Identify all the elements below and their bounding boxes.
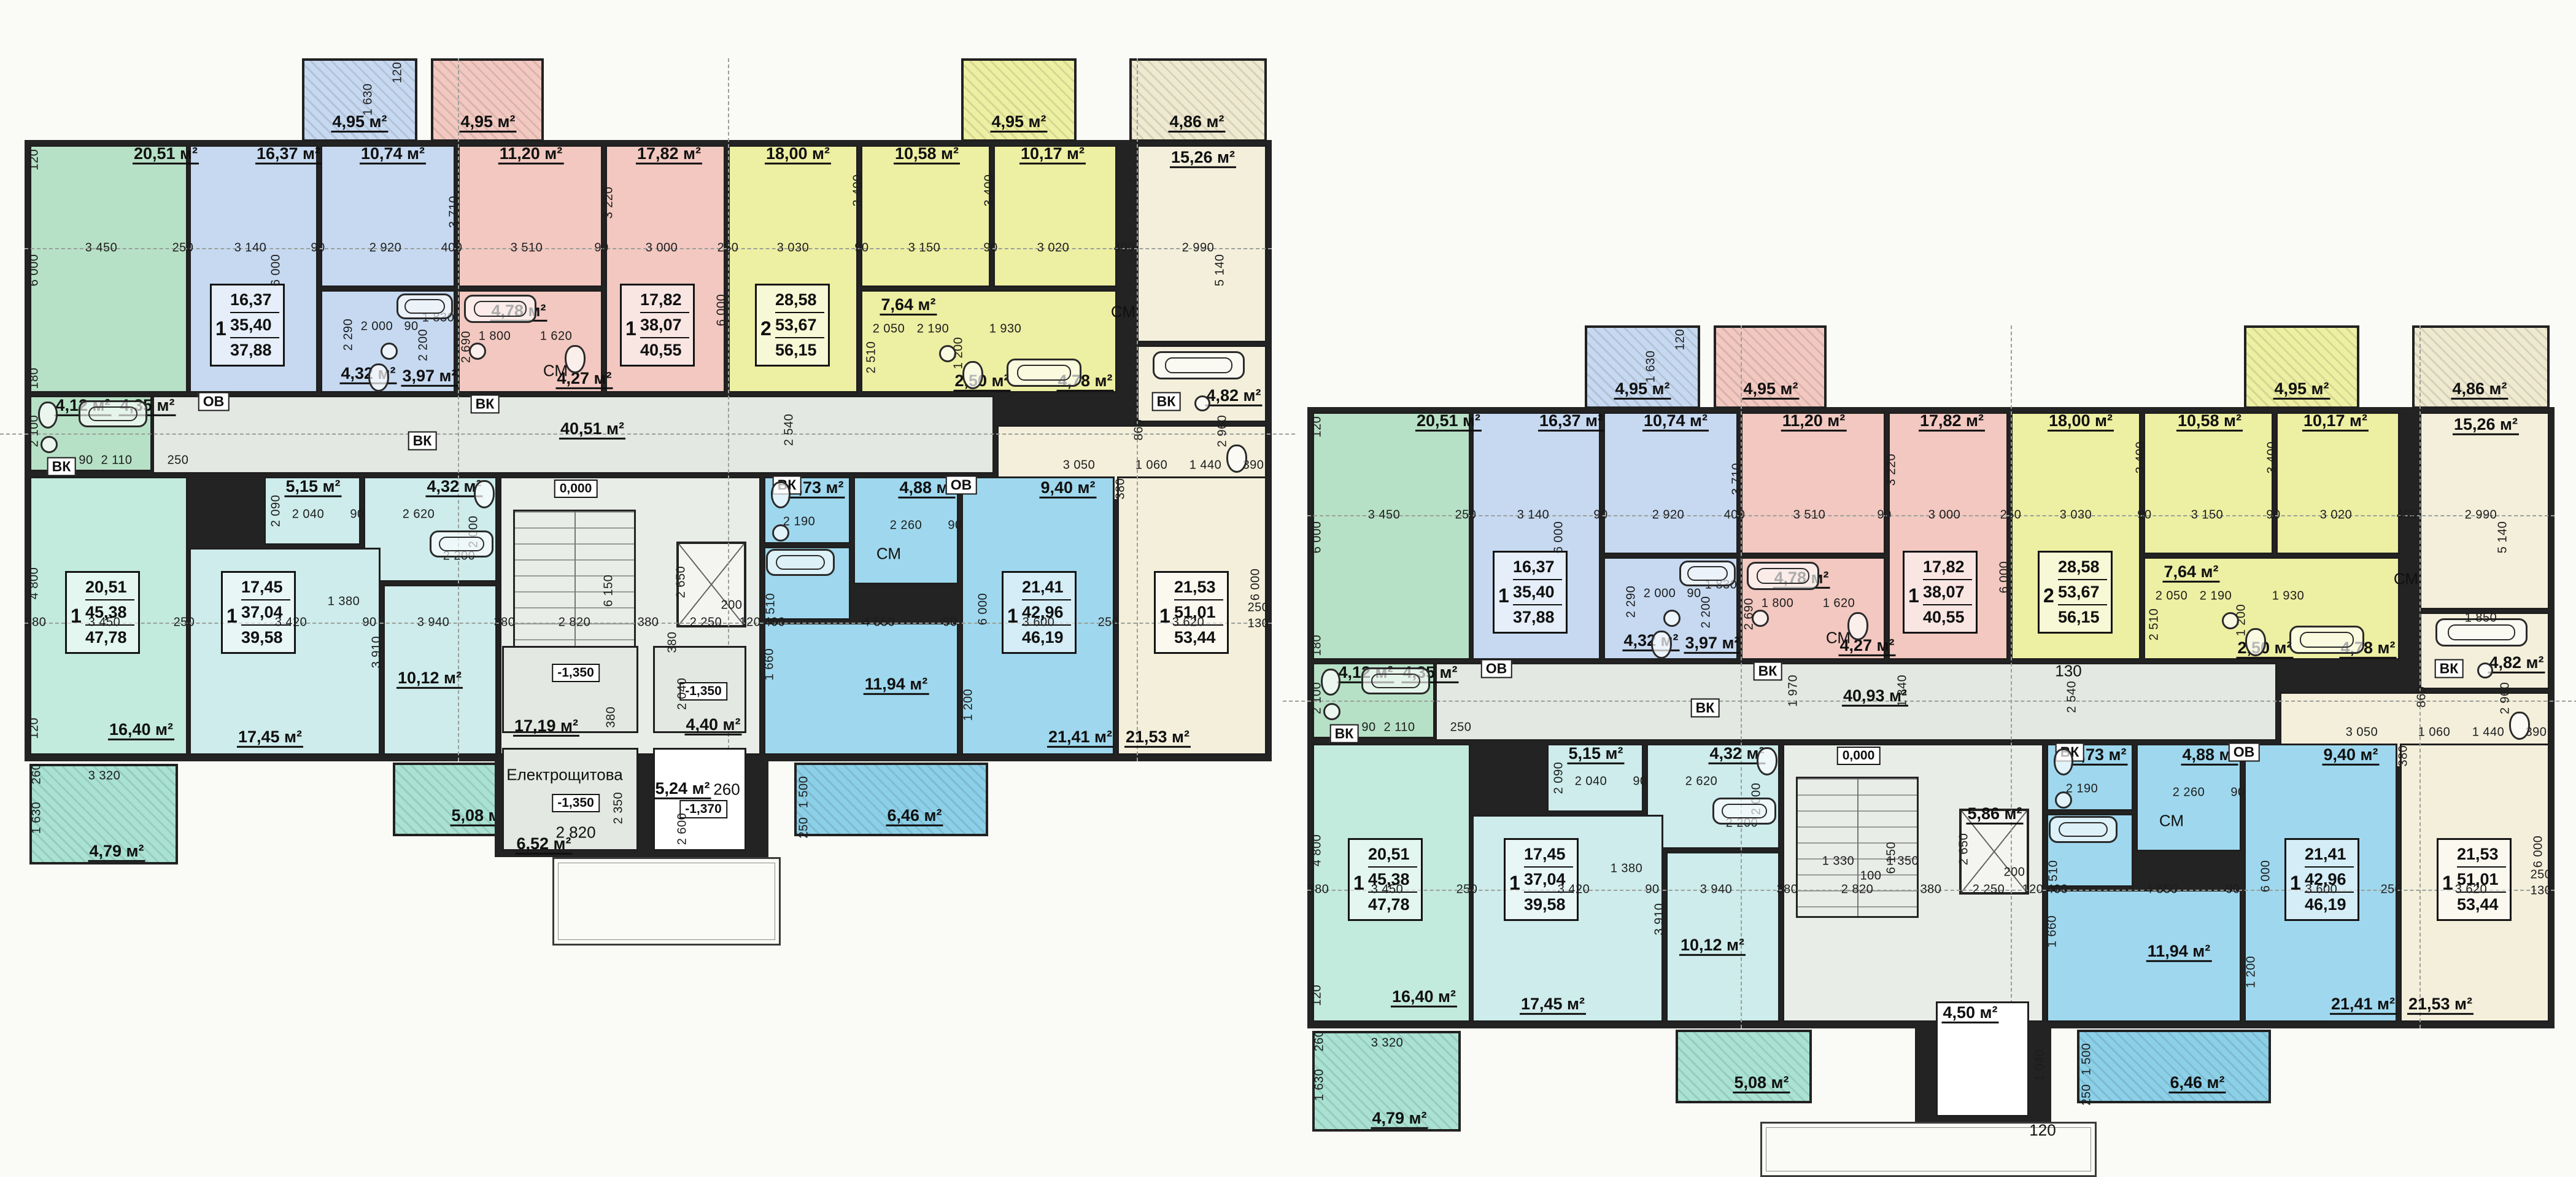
section-2-room-1058 bbox=[2143, 412, 2273, 554]
section-1-dimension-label: 2 040 bbox=[292, 508, 325, 522]
section-2-dimension-label: 120 bbox=[1674, 329, 1688, 351]
section-1-dimension-label: 250 bbox=[168, 454, 189, 468]
floor-plan-canvas: 116,3735,4037,88117,8238,0740,55228,5853… bbox=[0, 0, 2576, 1163]
section-1-dimension-label: 90 bbox=[948, 519, 962, 533]
section-1-room-1194 bbox=[764, 623, 959, 755]
section-1-room-1120 bbox=[458, 145, 603, 287]
section-2-sink-icon bbox=[2477, 662, 2493, 678]
area-value: 37,88 bbox=[1513, 605, 1562, 629]
section-2-axis-line bbox=[1741, 325, 1742, 1028]
area-value: 20,51 bbox=[85, 575, 134, 600]
section-2-dimension-label: 3 420 bbox=[1558, 883, 1590, 897]
section-2-dimension-label: 260 bbox=[1313, 1030, 1327, 1052]
section-1-dimension-label: 1 630 bbox=[362, 84, 376, 116]
section-2-dimension-label: 1 200 bbox=[2245, 956, 2259, 989]
section-1-dimension-label: 2 000 bbox=[361, 320, 393, 334]
section-2-dimension-label: 2 620 bbox=[1685, 775, 1718, 789]
section-2-staircase bbox=[1796, 777, 1919, 918]
section-1-dimension-label: 3 400 bbox=[983, 174, 997, 207]
section-2-dimension-label: 1 330 bbox=[1822, 855, 1855, 869]
section-2-room-living-2051 bbox=[1312, 412, 1471, 660]
section-1-dimension-label: 6 000 bbox=[977, 593, 991, 626]
section-1-sink-icon bbox=[381, 343, 398, 360]
section-2-dimension-label: 1 850 bbox=[2465, 612, 2497, 626]
section-1-dimension-label: 6 000 bbox=[715, 294, 729, 327]
section-1-toilet-icon bbox=[368, 363, 389, 392]
section-2-dimension-label: 6 000 bbox=[2259, 860, 2273, 893]
section-2-room-area-label: 7,64 м² bbox=[2162, 563, 2219, 583]
section-2-dimension-label: 90 bbox=[1645, 883, 1659, 897]
section-2-room-1017 bbox=[2276, 412, 2400, 554]
section-2-dimension-label: 3 940 bbox=[1700, 883, 1733, 897]
section-1-toilet-icon bbox=[771, 481, 791, 508]
section-1-apartment-summary: 116,3735,4037,88 bbox=[210, 284, 285, 367]
section-2-dimension-label: 2 960 bbox=[2499, 682, 2513, 715]
section-1-apartment-summary: 120,5145,3847,78 bbox=[65, 571, 140, 654]
section-1-dimension-label: 2 260 bbox=[890, 519, 922, 533]
section-1-dimension-label: 1 930 bbox=[989, 322, 1022, 336]
section-2-toilet-icon bbox=[1847, 612, 1868, 640]
section-2-dimension-label: 2 290 bbox=[1625, 586, 1639, 618]
section-2-apartment-summary: 117,4537,0439,58 bbox=[1504, 838, 1579, 921]
section-2-room-area-label: 21,53 м² bbox=[2407, 995, 2474, 1015]
section-2-dimension-label: 2 110 bbox=[1383, 721, 1415, 735]
section-1-apartment-summary: 228,5853,6756,15 bbox=[755, 284, 830, 367]
section-1-dimension-label: 3 510 bbox=[511, 241, 543, 255]
section-2-dimension-label: 5 140 bbox=[2496, 521, 2510, 554]
section-2-dimension-label: 1 630 bbox=[1644, 351, 1658, 383]
room-count: 1 bbox=[1498, 585, 1509, 607]
section-2-room-area-label: 10,74 м² bbox=[1642, 412, 1709, 432]
section-1-room-area-label: 3,97 м² bbox=[401, 367, 458, 387]
section-1-room-area-label: 15,26 м² bbox=[1170, 149, 1236, 168]
area-value: 17,45 bbox=[1524, 842, 1573, 868]
section-2-dimension-label: 3 320 bbox=[1371, 1036, 1404, 1051]
section-2-dimension-label: 90 bbox=[1593, 508, 1607, 522]
section-1-axis-line bbox=[458, 58, 459, 761]
section-1-dimension-label: 120 bbox=[28, 718, 42, 739]
section-2-room-1194 bbox=[2046, 890, 2241, 1022]
section-1-dimension-label: 250 bbox=[1248, 601, 1269, 615]
section-2-dimension-label: 2 820 bbox=[1841, 883, 1874, 897]
section-2-dimension-label: 250 bbox=[1450, 721, 1472, 735]
room-count: 1 bbox=[1007, 605, 1018, 627]
section-2-bathtub-icon bbox=[1361, 667, 1430, 694]
section-2-dimension-label: 120 bbox=[1310, 416, 1325, 438]
section-1-dimension-label: 180 bbox=[28, 368, 42, 389]
section-1-toilet-icon bbox=[962, 361, 983, 389]
section-2-dimension-label: 380 bbox=[1308, 883, 1329, 897]
section-1-dimension-label: 380 bbox=[494, 616, 516, 630]
section-1-dimension-label: 2 960 bbox=[1216, 415, 1230, 448]
section-2-apartment-summary: 121,5351,0153,44 bbox=[2437, 838, 2512, 921]
section-2-room-area-label: 10,17 м² bbox=[2302, 412, 2369, 432]
section-2-room-area-label: 4,79 м² bbox=[1371, 1109, 1428, 1129]
section-1-dimension-label: 1 380 bbox=[328, 595, 360, 609]
section-1-dimension-label: 3 320 bbox=[88, 769, 121, 783]
section-1-dimension-label: 1 660 bbox=[763, 648, 777, 681]
section-1-toilet-icon bbox=[38, 402, 58, 429]
section-2-dimension-label: 1 970 bbox=[1787, 675, 1801, 707]
section-2-dimension-label: 2 000 bbox=[1644, 587, 1676, 601]
section-1-room-area-label: 11,94 м² bbox=[864, 675, 929, 695]
section-1-bathtub-icon bbox=[1153, 351, 1245, 379]
section-1-dimension-label: 860 bbox=[1132, 419, 1147, 441]
section-2-toilet-icon bbox=[1757, 747, 1777, 775]
section-1-room-area-label: 21,41 м² bbox=[1047, 728, 1113, 748]
area-value: 40,55 bbox=[1923, 605, 1972, 629]
section-2-room-area-label: 10,58 м² bbox=[2176, 412, 2243, 432]
room-count: 1 bbox=[1908, 585, 1919, 607]
room-count: 1 bbox=[71, 605, 82, 627]
section-2-dimension-label: 3 030 bbox=[2060, 508, 2092, 522]
section-2-dimension-label: 90 bbox=[2137, 508, 2151, 522]
section-1-dimension-label: 2 090 bbox=[269, 495, 284, 527]
section-1-room-area-label: 4,79 м² bbox=[88, 842, 145, 862]
section-1-dimension-label: 90 bbox=[983, 241, 997, 255]
section-1-dimension-label: 2 040 bbox=[676, 678, 690, 710]
section-2-shaft-label-вк: ВК bbox=[1691, 699, 1720, 718]
section-1-text-label: 260 bbox=[713, 780, 740, 799]
section-1-dimension-label: 3 910 bbox=[370, 636, 384, 669]
section-2-room-area-label: 4,82 м² bbox=[2488, 654, 2545, 674]
section-2-dimension-label: 3 050 bbox=[2346, 726, 2378, 740]
section-1-room-area-label: 16,40 м² bbox=[108, 721, 174, 740]
section-1-dimension-label: 2 200 bbox=[417, 329, 431, 362]
section-2-dimension-label: 1 440 bbox=[2472, 726, 2505, 740]
section-2-sink-icon bbox=[1323, 703, 1340, 720]
area-value: 20,51 bbox=[1368, 842, 1417, 868]
section-2-dimension-label: 90 bbox=[1877, 508, 1891, 522]
section-1-dimension-label: 2 190 bbox=[917, 322, 950, 336]
section-2-dimension-label: 120 bbox=[2022, 883, 2044, 897]
section-2-dimension-label: 3 450 bbox=[1371, 883, 1404, 897]
section-1-toilet-icon bbox=[474, 480, 495, 508]
section-1-apartment-summary: 121,5351,0153,44 bbox=[1154, 571, 1229, 654]
section-1-shaft-label-вк: ВК bbox=[408, 432, 437, 451]
section-2-bathtub-icon bbox=[1679, 561, 1736, 586]
section-1-room-area-label: 18,00 м² bbox=[765, 145, 831, 165]
area-value: 16,37 bbox=[1513, 555, 1562, 580]
section-1-dimension-label: 2 190 bbox=[783, 515, 816, 529]
section-2-shaft-label-вк: ВК bbox=[1754, 662, 1782, 681]
section-1-dimension-label: 380 bbox=[605, 707, 619, 728]
section-2-toilet-icon bbox=[2509, 712, 2530, 740]
section-1-dimension-label: 5 140 bbox=[1213, 254, 1228, 287]
section-2-axis-line bbox=[1283, 701, 2576, 702]
section-1-text-label: 2 820 bbox=[555, 823, 595, 842]
section-2-text-label: 120 bbox=[2029, 1121, 2056, 1140]
section-1-room-area-label: 4,86 м² bbox=[1168, 113, 1225, 133]
section-1-axis-line bbox=[0, 433, 1295, 435]
section-2-dimension-label: 180 bbox=[1310, 635, 1325, 656]
room-count: 1 bbox=[2290, 872, 2301, 895]
section-2-bathtub-icon bbox=[1747, 562, 1819, 590]
section-2-apartment-summary: 116,3735,4037,88 bbox=[1493, 551, 1568, 634]
section-2-room-area-label: 16,37 м² bbox=[1538, 412, 1604, 432]
section-1-dimension-label: 120 bbox=[391, 62, 405, 84]
section-1-dimension-label: 120 bbox=[28, 149, 42, 171]
section-1-room-1058 bbox=[861, 145, 991, 287]
section-2-dimension-label: 380 bbox=[2397, 745, 2411, 767]
section-1-dimension-label: 3 150 bbox=[908, 241, 941, 255]
section-1-dimension-label: 2 920 bbox=[369, 241, 402, 255]
section-1-shaft-label-ов: ОВ bbox=[198, 392, 230, 411]
section-1-dimension-label: 3 450 bbox=[85, 241, 118, 255]
area-value: 28,58 bbox=[2058, 555, 2107, 580]
section-1-dimension-label: 1 620 bbox=[540, 330, 573, 344]
section-1-dimension-label: 3 020 bbox=[1037, 241, 1070, 255]
section-1-dimension-label: 380 bbox=[25, 616, 47, 630]
section-1-room-area-label: 10,17 м² bbox=[1019, 145, 1086, 165]
section-2-dimension-label: 3 220 bbox=[1885, 454, 1899, 486]
section-1-dimension-label: 1 800 bbox=[479, 330, 511, 344]
section-1-room-area-label: 10,74 м² bbox=[360, 145, 426, 165]
section-1-apartment-summary: 121,4142,9646,19 bbox=[1002, 571, 1077, 654]
section-1-dimension-label: 3 600 bbox=[1023, 616, 1055, 630]
section-1-elevation-mark: -1,350 bbox=[552, 794, 600, 812]
section-1-dimension-label: 260 bbox=[30, 763, 44, 785]
section-1-dimension-label: 90 bbox=[943, 616, 957, 630]
section-1-dimension-label: 6 000 bbox=[28, 254, 42, 287]
section-1-dimension-label: 3 450 bbox=[88, 616, 121, 630]
section-1-dimension-label: 6 000 bbox=[1249, 569, 1263, 601]
section-2-dimension-label: 860 bbox=[2415, 686, 2429, 708]
section-2-dimension-label: 250 bbox=[2381, 883, 2402, 897]
section-2-dimension-label: 3 400 bbox=[2265, 441, 2280, 474]
section-1-dimension-label: 3 620 bbox=[1172, 616, 1205, 630]
section-2-shaft-label-ов: ОВ bbox=[1481, 659, 1512, 678]
section-1-sink-icon bbox=[41, 436, 58, 453]
section-2-shaft-label-вк: ВК bbox=[1330, 724, 1359, 744]
section-1-dimension-label: 2 050 bbox=[873, 322, 905, 336]
section-1-text-label: СМ bbox=[543, 362, 568, 381]
section-1-dimension-label: 400 bbox=[441, 241, 463, 255]
section-2-apartment-summary: 121,4142,9646,19 bbox=[2284, 838, 2359, 921]
section-1-toilet-icon bbox=[565, 345, 586, 373]
section-1-sink-icon bbox=[772, 524, 789, 542]
section-1-dimension-label: 200 bbox=[721, 599, 743, 613]
area-value: 35,40 bbox=[230, 313, 279, 338]
section-2-room-1074 bbox=[1603, 412, 1738, 554]
section-2-sink-icon bbox=[2055, 791, 2072, 809]
section-2-sink-icon bbox=[1752, 610, 1769, 627]
section-1-room-area-label: 11,20 м² bbox=[498, 145, 564, 165]
area-value: 17,45 bbox=[241, 575, 290, 600]
section-1-dimension-label: 3 940 bbox=[417, 616, 450, 630]
section-1-dimension-label: 130 bbox=[1248, 617, 1269, 631]
section-2-dimension-label: 3 910 bbox=[1653, 903, 1667, 936]
section-1-dimension-label: 2 990 bbox=[1182, 241, 1215, 255]
section-2-dimension-label: 100 bbox=[1860, 869, 1882, 884]
section-1-room-area-label: 9,40 м² bbox=[1039, 479, 1096, 499]
section-2-room-area-label: 17,82 м² bbox=[1919, 412, 1985, 432]
section-1-dimension-label: 2 510 bbox=[865, 341, 879, 374]
section-1-room-area-label: 17,45 м² bbox=[237, 728, 303, 748]
section-2-dimension-label: 2 920 bbox=[1652, 508, 1685, 522]
section-2-dimension-label: 250 bbox=[2000, 508, 2022, 522]
section-2-apartment-summary: 117,8238,0740,55 bbox=[1903, 551, 1978, 634]
section-1-shaft-label-вк: ВК bbox=[471, 395, 500, 414]
section-2-dimension-label: 6 000 bbox=[1310, 521, 1325, 554]
section-2-text-label: СМ bbox=[1826, 629, 1851, 648]
section-1-dimension-label: 1 440 bbox=[1189, 459, 1222, 473]
area-value: 37,88 bbox=[230, 338, 279, 362]
area-value: 28,58 bbox=[775, 288, 824, 313]
section-1-sink-icon bbox=[1194, 395, 1210, 411]
section-1-dimension-label: 2 110 bbox=[101, 454, 132, 468]
section-1-shaft-label-вк: ВК bbox=[47, 457, 76, 476]
section-2-dimension-label: 90 bbox=[2226, 883, 2240, 897]
section-2-dimension-label: 2 990 bbox=[2465, 508, 2497, 522]
section-2-room-area-label: 9,40 м² bbox=[2322, 746, 2379, 766]
section-2-dimension-label: 2 040 bbox=[1575, 775, 1607, 789]
section-2-dimension-label: 250 bbox=[2531, 868, 2552, 882]
section-2-dimension-label: 3 400 bbox=[2134, 441, 2148, 474]
section-2-room-area-label: 21,41 м² bbox=[2330, 995, 2396, 1015]
section-1-dimension-label: 380 bbox=[638, 616, 659, 630]
section-2-room-area-label: 11,20 м² bbox=[1781, 412, 1847, 432]
section-1-dimension-label: 2 540 bbox=[783, 414, 797, 446]
section-2-dimension-label: 3 510 bbox=[1793, 508, 1826, 522]
section-2-dimension-label: 1 930 bbox=[2272, 589, 2305, 604]
section-2-dimension-label: 2 540 bbox=[2065, 681, 2079, 713]
section-2-dimension-label: 380 bbox=[1920, 883, 1942, 897]
section-1-room-area-label: 4,95 м² bbox=[990, 113, 1047, 133]
section-1-apartment-summary: 117,8238,0740,55 bbox=[620, 284, 695, 367]
section-2-dimension-label: 130 bbox=[2531, 884, 2552, 898]
section-2-sink-icon bbox=[1663, 610, 1681, 627]
room-count: 1 bbox=[1509, 872, 1520, 895]
section-1-room-1017 bbox=[993, 145, 1117, 287]
section-1-text-label: СМ bbox=[1111, 303, 1135, 322]
section-1-room-area-label: 17,19 м² bbox=[513, 717, 579, 737]
section-1-dimension-label: 6 000 bbox=[269, 254, 284, 287]
room-count: 1 bbox=[226, 605, 238, 627]
section-1-dimension-label: 250 bbox=[174, 616, 195, 630]
section-1-room-area-label: 4,40 м² bbox=[684, 716, 741, 736]
section-1-shaft-label-вк: ВК bbox=[1152, 392, 1181, 411]
section-1-elevation-mark: -1,350 bbox=[552, 664, 600, 682]
room-count: 2 bbox=[760, 317, 772, 340]
section-2-dimension-label: 2 200 bbox=[1700, 596, 1714, 629]
section-1-dimension-label: 90 bbox=[854, 241, 868, 255]
section-2-bathtub-icon bbox=[1712, 798, 1776, 825]
section-1-text-label: Електрощитова bbox=[506, 766, 622, 785]
section-2-dimension-label: 1 660 bbox=[2046, 915, 2060, 948]
section-2-room-area-label: 5,15 м² bbox=[1567, 745, 1624, 764]
section-1-dimension-label: 400 bbox=[1114, 241, 1135, 255]
section-2-dimension-label: 2 650 bbox=[1957, 833, 1971, 866]
section-2-dimension-label: 1 350 bbox=[1887, 855, 1919, 869]
section-1-dimension-label: 1 500 bbox=[797, 776, 811, 809]
section-2-dimension-label: 1 620 bbox=[1823, 597, 1855, 611]
section-2-dimension-label: 3 150 bbox=[2191, 508, 2224, 522]
section-2-dimension-label: 3 600 bbox=[2305, 883, 2338, 897]
section-2-dimension-label: 3 020 bbox=[2320, 508, 2353, 522]
section-2-dimension-label: 400 bbox=[1724, 508, 1746, 522]
section-2-dimension-label: 3 620 bbox=[2455, 883, 2488, 897]
section-1-room-area-label: 21,53 м² bbox=[1124, 728, 1191, 748]
section-1-dimension-label: 4 550 bbox=[863, 616, 895, 630]
section-2-dimension-label: 2 190 bbox=[2066, 782, 2098, 796]
section-1-dimension-label: 1 630 bbox=[30, 802, 44, 834]
section-2-room-area-label: 20,51 м² bbox=[1415, 412, 1482, 432]
section-1-axis-line bbox=[1137, 58, 1138, 761]
section-2-room-area-label: 15,26 м² bbox=[2453, 416, 2519, 435]
section-1-bathtub-icon bbox=[79, 400, 147, 427]
section-1-dimension-label: 250 bbox=[1098, 616, 1120, 630]
section-2-dimension-label: 3 710 bbox=[1730, 463, 1744, 495]
section-1-dimension-label: 1 200 bbox=[962, 689, 976, 721]
section-1-room-area-label: 10,12 м² bbox=[396, 669, 463, 689]
section-2-shaft-label-вк: ВК bbox=[2435, 659, 2464, 678]
section-2-room-area-label: 4,86 м² bbox=[2451, 380, 2508, 400]
section-1-dimension-label: 2 510 bbox=[764, 593, 778, 626]
section-2-sink-icon bbox=[2222, 612, 2239, 629]
section-1-dimension-label: 2 620 bbox=[403, 508, 435, 522]
section-2-dimension-label: 2 090 bbox=[1552, 762, 1566, 794]
section-1-room-1074 bbox=[320, 145, 455, 287]
section-2-text-label: СМ bbox=[2394, 570, 2418, 589]
section-1-bathtub-icon bbox=[766, 549, 835, 576]
section-2-dimension-label: 3 140 bbox=[1517, 508, 1550, 522]
section-1-dimension-label: 3 000 bbox=[646, 241, 678, 255]
section-1-toilet-icon bbox=[1226, 445, 1247, 473]
area-value: 53,67 bbox=[2058, 580, 2107, 605]
section-1-bathtub-icon bbox=[396, 293, 453, 319]
section-2-dimension-label: 1 040 bbox=[2033, 1049, 2048, 1082]
section-2-dimension-label: 90 bbox=[1633, 775, 1647, 789]
section-1-room-area-label: 4,95 м² bbox=[459, 113, 516, 133]
area-value: 21,53 bbox=[1174, 575, 1223, 600]
section-2-room-area-label: 4,50 м² bbox=[1941, 1004, 1998, 1024]
section-2-dimension-label: 1 630 bbox=[1313, 1069, 1327, 1101]
section-2-room-area-label: 16,40 м² bbox=[1391, 988, 1457, 1008]
section-1-shaft-label-ов: ОВ bbox=[946, 476, 977, 495]
area-value: 38,07 bbox=[1923, 580, 1972, 605]
section-2-room-area-label: 3,97 м² bbox=[1684, 634, 1741, 654]
section-2-toilet-icon bbox=[2054, 748, 2073, 775]
area-value: 21,41 bbox=[2305, 842, 2354, 868]
section-1-dimension-label: 2 650 bbox=[675, 566, 689, 599]
section-1-dimension-label: 3 710 bbox=[447, 196, 462, 228]
section-2-room-area-label: 17,45 м² bbox=[1520, 995, 1586, 1015]
section-1-staircase bbox=[513, 510, 636, 651]
section-2-text-label: 130 bbox=[2055, 662, 2081, 681]
section-2-dimension-label: 6 000 bbox=[2532, 836, 2546, 868]
section-2-room-area-label: 4,95 м² bbox=[1742, 380, 1799, 400]
section-1-bathtub-icon bbox=[1007, 359, 1081, 387]
section-1-dimension-label: 3 400 bbox=[851, 174, 865, 207]
section-2-dimension-label: 200 bbox=[2004, 866, 2025, 880]
section-1-dimension-label: 4 800 bbox=[28, 567, 42, 600]
section-2-axis-line bbox=[2011, 325, 2012, 1028]
section-2-room-area-label: 11,94 м² bbox=[2146, 942, 2212, 962]
section-1-dimension-label: 90 bbox=[311, 241, 325, 255]
section-1-dimension-label: 3 140 bbox=[234, 241, 267, 255]
section-2-dimension-label: 250 bbox=[1455, 508, 1477, 522]
section-1-room-area-label: 16,37 м² bbox=[255, 145, 322, 165]
area-value: 35,40 bbox=[1513, 580, 1562, 605]
section-1-dimension-label: 250 bbox=[717, 241, 739, 255]
room-count: 2 bbox=[2043, 585, 2054, 607]
section-1-sink-icon bbox=[939, 345, 956, 362]
section-2-dimension-label: 250 bbox=[2080, 1084, 2094, 1106]
section-1-dimension-label: 1 060 bbox=[1135, 459, 1168, 473]
section-2-dimension-label: 2 190 bbox=[2200, 589, 2232, 604]
section-1-room-area-label: 4,82 м² bbox=[1205, 387, 1262, 406]
